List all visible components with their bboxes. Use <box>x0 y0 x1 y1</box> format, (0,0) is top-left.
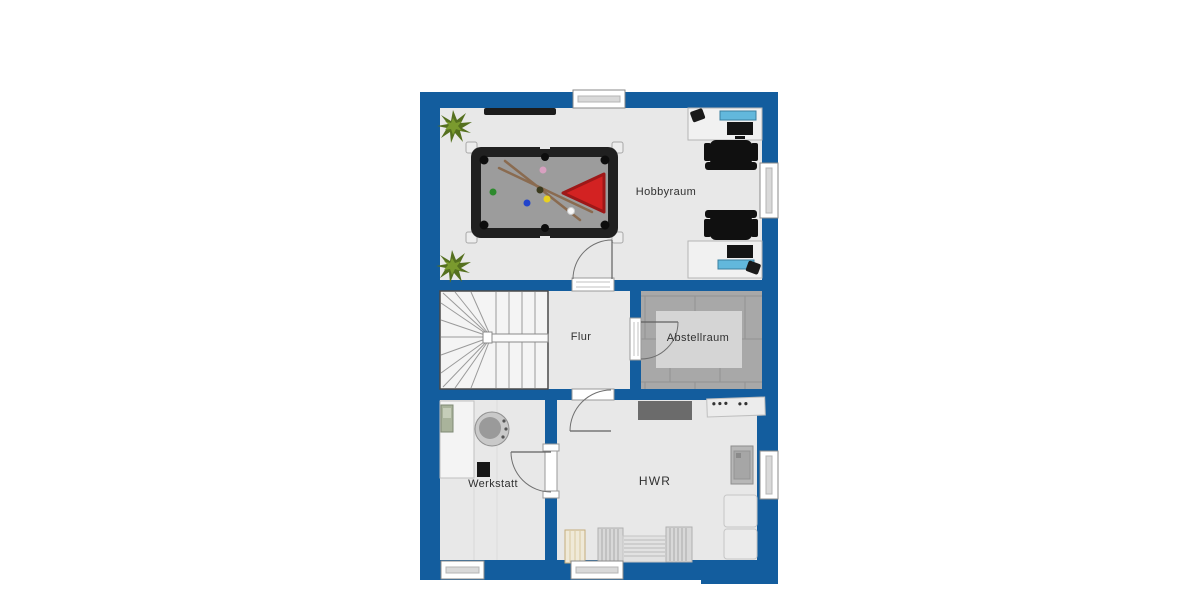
boiler-cabinet <box>731 446 753 484</box>
floorplan-drawing <box>0 0 1200 600</box>
window-hobbyraum-right <box>760 163 778 218</box>
window-hwr-right <box>760 451 778 499</box>
desk-top <box>688 108 762 140</box>
drying-rack <box>565 530 585 563</box>
billiard-table <box>466 142 623 243</box>
bench-block <box>477 462 490 477</box>
desk-bottom <box>688 241 762 278</box>
room-label-flur: Flur <box>571 331 592 343</box>
window-hobbyraum-top <box>573 90 625 108</box>
room-label-abstellraum: Abstellraum <box>667 332 729 344</box>
window-hwr-bottom <box>571 561 623 579</box>
room-label-hobbyraum: Hobbyraum <box>636 186 696 198</box>
monitor <box>727 245 753 258</box>
appliance-2 <box>724 529 757 559</box>
storage-shelf <box>638 401 692 420</box>
monitor <box>727 122 753 135</box>
laptop <box>720 111 756 120</box>
wall-shelf <box>484 108 556 115</box>
room-label-werkstatt: Werkstatt <box>468 478 518 490</box>
bench-machine <box>475 412 509 446</box>
office-chair-bottom <box>704 210 758 240</box>
office-chair-top <box>704 140 758 170</box>
winder-staircase <box>440 291 548 389</box>
room-label-hwr: HWR <box>639 474 671 488</box>
appliance-1 <box>724 495 757 527</box>
control-unit <box>707 397 766 417</box>
window-werkstatt-bottom <box>441 561 484 579</box>
floorplan-page: Hobbyraum Flur Abstellraum Werkstatt HWR <box>0 0 1200 600</box>
